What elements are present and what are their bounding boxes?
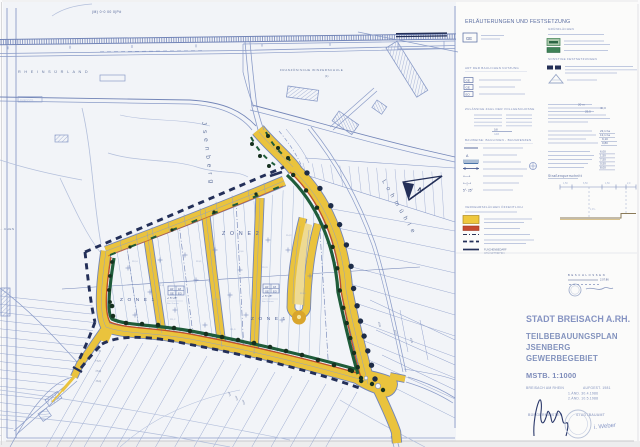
svg-text:GRÜNFLÄCHEN: GRÜNFLÄCHEN <box>548 27 574 31</box>
svg-text:GE: GE <box>170 291 174 295</box>
svg-text:1,50: 1,50 <box>563 182 568 185</box>
svg-text:ART DER BAULICHEN NUTZUNG: ART DER BAULICHEN NUTZUNG <box>465 66 519 70</box>
svg-text:213,1: 213,1 <box>196 261 202 263</box>
svg-text:GEWERBEGEBIET: GEWERBEGEBIET <box>526 354 598 363</box>
svg-text:TEILBEBAUUNGSPLAN: TEILBEBAUUNGSPLAN <box>526 332 618 341</box>
svg-text:212,0: 212,0 <box>214 299 220 301</box>
svg-text:GE: GE <box>466 86 470 90</box>
svg-text:SONSTIGE FESTSETZUNGEN: SONSTIGE FESTSETZUNGEN <box>548 57 597 61</box>
svg-text:∠ 5°-25°: ∠ 5°-25° <box>167 296 177 300</box>
svg-text:0,8: 0,8 <box>494 128 498 132</box>
svg-text:BAUWEISE: BAULINIEN - BAUGREN: BAUWEISE: BAULINIEN - BAUGRENZEN <box>465 138 531 142</box>
svg-text:ERLÄUTERUNGEN UND FESTSETZUN: ERLÄUTERUNGEN UND FESTSETZUNG <box>465 18 570 25</box>
svg-text:Z O N E 1: Z O N E 1 <box>251 316 287 322</box>
svg-text:ZULÄSSIGE ZAHL DER VOLLGESCHO: ZULÄSSIGE ZAHL DER VOLLGESCHOSSE <box>465 107 535 111</box>
svg-text:JSENBERG: JSENBERG <box>526 343 571 352</box>
svg-text:FLÄCHENBEDARF: FLÄCHENBEDARF <box>484 248 507 252</box>
svg-text:∠ 5°-25°: ∠ 5°-25° <box>262 294 272 298</box>
svg-text:LR: LR <box>170 287 173 291</box>
svg-text:GRZ: GRZ <box>494 133 500 136</box>
svg-text:STADT BREISACH A.RH.: STADT BREISACH A.RH. <box>526 314 630 324</box>
svg-text:1,50: 1,50 <box>605 182 610 185</box>
svg-text:0,80: 0,80 <box>602 141 608 145</box>
svg-text:BREISACH AM RHEIN: BREISACH AM RHEIN <box>526 386 564 390</box>
svg-text:(1): (1) <box>325 74 328 78</box>
svg-text:20 m: 20 m <box>578 103 585 107</box>
svg-text:40,0: 40,0 <box>600 106 606 110</box>
svg-text:B E S C H L O S S E N: B E S C H L O S S E N <box>568 273 605 277</box>
svg-text:211,9: 211,9 <box>230 329 236 331</box>
svg-text:GE: GE <box>265 289 269 293</box>
svg-text:MSTB. 1:1000: MSTB. 1:1000 <box>526 371 576 380</box>
svg-text:25,5: 25,5 <box>585 110 591 114</box>
svg-text:Bau Grenze: Bau Grenze <box>262 300 274 303</box>
svg-text:FRANZÖSISCHE WINZERSCHULE: FRANZÖSISCHE WINZERSCHULE <box>280 68 343 72</box>
svg-text:AUFGEST. 1981: AUFGEST. 1981 <box>583 386 611 390</box>
svg-text:(M) 0·0 00 0|P#: (M) 0·0 00 0|P# <box>92 10 122 14</box>
svg-text:2.07.86: 2.07.86 <box>600 278 609 282</box>
svg-text:6,50: 6,50 <box>583 182 588 185</box>
svg-text:1.ÄND. 30.4.1986: 1.ÄND. 30.4.1986 <box>568 392 598 396</box>
svg-text:Bau Grenze: Bau Grenze <box>167 302 179 305</box>
svg-text:211,8: 211,8 <box>158 285 164 287</box>
svg-text:RHEINSTR.: RHEINSTR. <box>20 98 34 102</box>
svg-text:VERKEHRSFLÄCHEN ÖFFENTLICH: VERKEHRSFLÄCHEN ÖFFENTLICH <box>465 205 523 209</box>
svg-text:212,4: 212,4 <box>132 261 138 263</box>
svg-text:EO: EO <box>178 291 182 295</box>
svg-text:...CHEN: ...CHEN <box>0 227 15 231</box>
svg-text:+–¦–+: +–¦–+ <box>463 182 471 186</box>
svg-text:8,00: 8,00 <box>600 166 606 170</box>
svg-text:214,2: 214,2 <box>286 235 292 237</box>
svg-text:211,2: 211,2 <box>170 319 176 321</box>
svg-text:R H E I N S Ü R L A N D: R H E I N S Ü R L A N D <box>18 70 89 74</box>
svg-text:+—+: +—+ <box>463 175 470 179</box>
svg-text:213,4: 213,4 <box>300 293 306 295</box>
svg-text:EO: EO <box>273 289 277 293</box>
svg-text:2,5%: 2,5% <box>590 209 595 211</box>
svg-text:2.ÄND. 10.5.1988: 2.ÄND. 10.5.1988 <box>568 397 598 401</box>
svg-text:Z O N E 2: Z O N E 2 <box>222 231 260 237</box>
svg-text:Z O N E 1: Z O N E 1 <box>120 297 156 303</box>
svg-text:212,9: 212,9 <box>262 267 268 269</box>
svg-text:GE: GE <box>466 79 470 83</box>
svg-text:EO: EO <box>466 93 471 97</box>
svg-text:LR: LR <box>265 285 268 289</box>
svg-text:5°- 25°: 5°- 25° <box>463 189 474 193</box>
svg-text:GE: GE <box>466 36 472 41</box>
svg-text:Straßenquerschnitt: Straßenquerschnitt <box>548 174 582 178</box>
svg-text:213,6: 213,6 <box>238 251 244 253</box>
